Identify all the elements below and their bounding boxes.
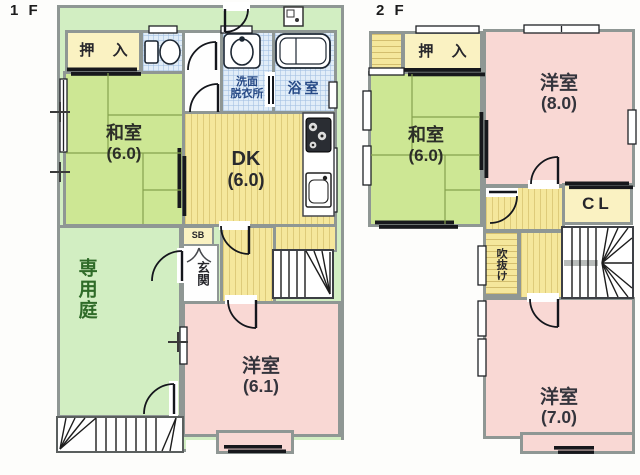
roof-hatch-2f	[369, 31, 404, 72]
corridor-1f	[220, 225, 276, 304]
room-name: 洋室	[540, 73, 578, 94]
room-size: (6.1)	[243, 377, 279, 397]
dk-extension-1f	[273, 225, 337, 252]
private-garden-label: 専用庭	[72, 230, 100, 348]
room-name: DK	[232, 148, 261, 170]
shoe-box-label: SB	[184, 227, 212, 244]
room-toilet-1f	[140, 30, 185, 74]
washitsu-1f-label: 和室 (6.0)	[63, 108, 185, 178]
stairs-2f	[562, 227, 633, 298]
washitsu-2f-label: 和室 (6.0)	[370, 110, 482, 180]
bay-western-61-1f	[216, 430, 294, 454]
room-name: 洋室	[242, 356, 280, 377]
bath-label: 浴室	[272, 76, 337, 102]
oshiire-2f-label: 押 入	[402, 33, 483, 71]
void-label: 吹抜け	[487, 235, 515, 293]
western-7-label: 洋室 (7.0)	[483, 375, 635, 439]
cl-label: CL	[562, 186, 633, 222]
floor-plan-page: 1 F 押 入 和室 (6.0) DK (6.0) 洗面 脱衣所 浴室 SB 玄…	[0, 0, 640, 475]
room-wet-hall-1f	[182, 30, 223, 114]
washroom-label: 洗面 脱衣所	[218, 68, 276, 108]
room-size: (7.0)	[541, 408, 577, 428]
washroom-label-line1: 洗面	[236, 76, 258, 88]
room-size: (8.0)	[541, 94, 577, 114]
room-size: (6.0)	[227, 170, 264, 190]
washroom-label-line2: 脱衣所	[231, 88, 264, 100]
room-name: 洋室	[540, 387, 578, 408]
room-name: 和室	[408, 125, 444, 145]
genkan-label: 玄関	[193, 248, 211, 298]
hall-lower-2f	[518, 230, 564, 304]
oshiire-1f-label: 押 入	[65, 32, 142, 70]
floor2-label: 2 F	[376, 2, 426, 20]
room-name: 和室	[106, 123, 142, 143]
hall-upper-2f	[483, 185, 565, 232]
room-size: (6.0)	[107, 144, 142, 163]
floor1-label: 1 F	[10, 2, 60, 20]
room-size: (6.0)	[409, 146, 444, 165]
western-8-label: 洋室 (8.0)	[483, 58, 635, 128]
western-61-label: 洋室 (6.1)	[186, 345, 336, 407]
dk-label: DK (6.0)	[190, 138, 302, 200]
